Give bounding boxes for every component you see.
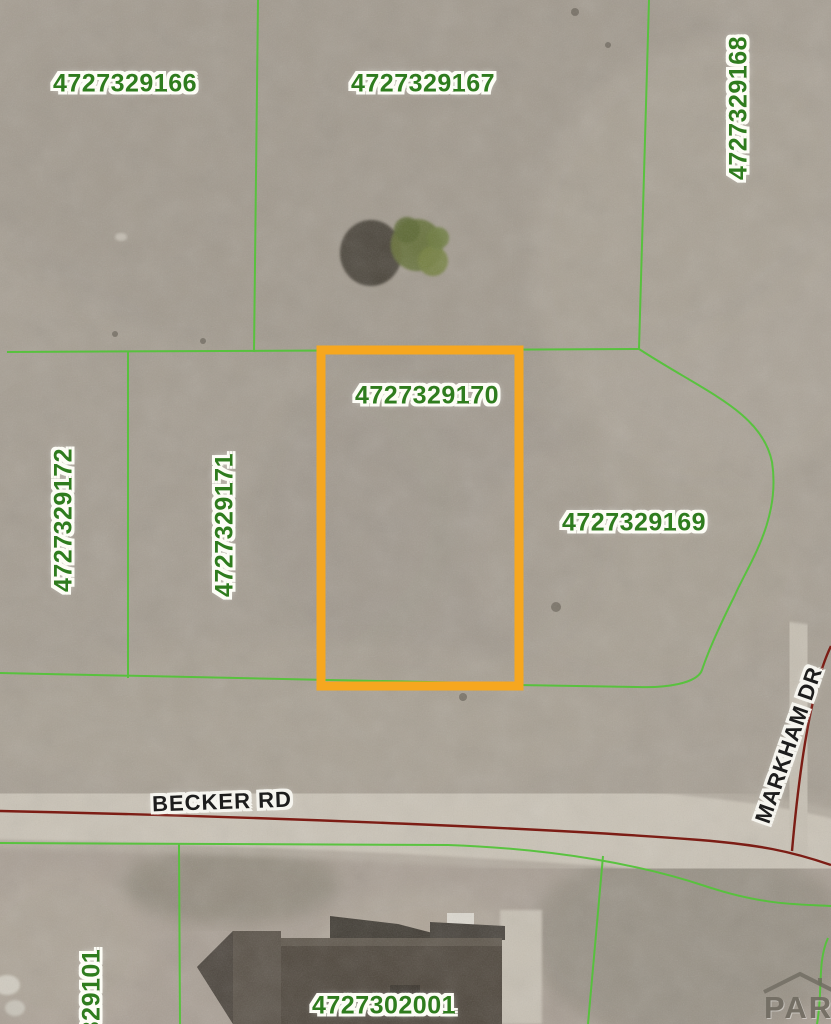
parcel-label-329101[interactable]: 329101 — [80, 949, 105, 1024]
watermark-logo: PAR — [762, 970, 831, 1024]
parcel-label-4727329172[interactable]: 4727329172 — [52, 448, 77, 592]
road-label-becker-rd: BECKER RD — [152, 789, 292, 816]
parcel-label-4727302001[interactable]: 4727302001 — [312, 994, 456, 1019]
parcel-label-4727329166[interactable]: 4727329166 — [53, 72, 197, 97]
parcel-label-4727329171[interactable]: 4727329171 — [213, 453, 238, 597]
parcel-label-4727329167[interactable]: 4727329167 — [351, 72, 495, 97]
aerial-noise-fine — [0, 0, 831, 1024]
watermark-text: PAR — [764, 992, 831, 1023]
parcel-label-4727329169[interactable]: 4727329169 — [562, 511, 706, 536]
parcel-label-4727329168[interactable]: 4727329168 — [727, 36, 752, 180]
aerial-map-layers — [0, 0, 831, 1024]
parcel-label-4727329170[interactable]: 4727329170 — [355, 384, 499, 409]
parcel-map-canvas[interactable]: 4727329166 4727329167 4727329168 4727329… — [0, 0, 831, 1024]
boundary-101-2001 — [179, 844, 180, 1024]
